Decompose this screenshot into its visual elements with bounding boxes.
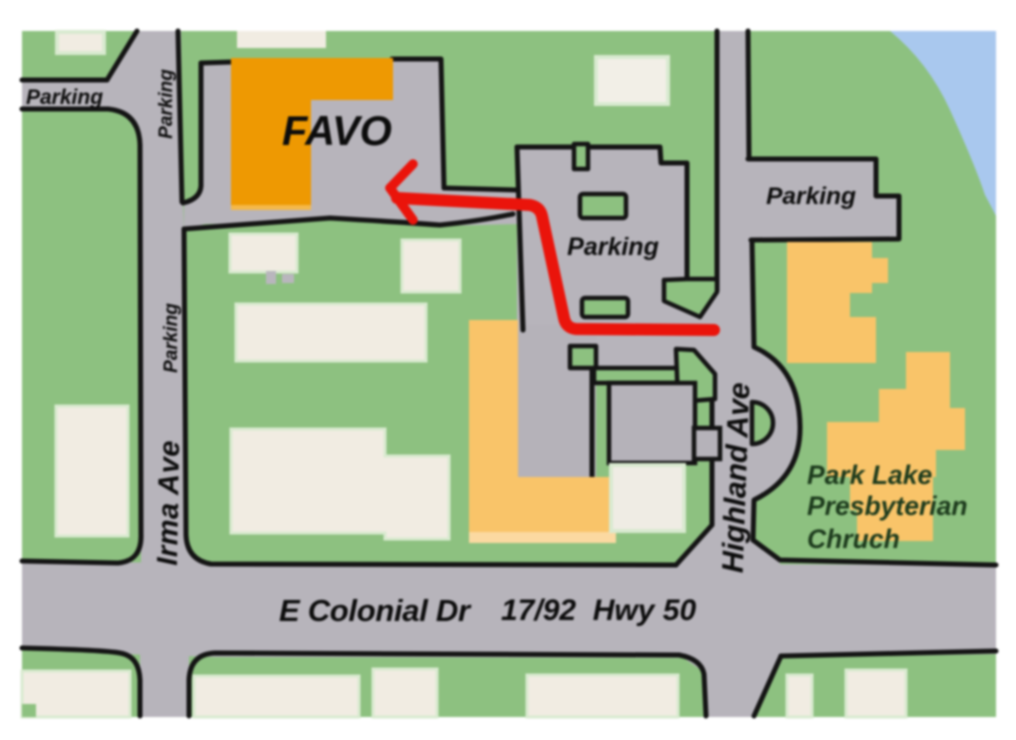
svg-text:Parking: Parking xyxy=(766,183,856,210)
svg-text:Presbyterian: Presbyterian xyxy=(807,491,968,521)
svg-text:FAVO: FAVO xyxy=(282,107,392,154)
svg-text:Irma Ave: Irma Ave xyxy=(152,440,186,566)
svg-text:Parking: Parking xyxy=(161,303,182,373)
svg-text:E Colonial Dr: E Colonial Dr xyxy=(279,593,472,628)
svg-text:Parking: Parking xyxy=(26,86,103,109)
svg-text:17/92 Hwy 50: 17/92 Hwy 50 xyxy=(501,594,696,627)
svg-text:Chruch: Chruch xyxy=(807,524,900,554)
svg-text:Parking: Parking xyxy=(567,233,659,261)
svg-text:Park Lake: Park Lake xyxy=(807,460,932,490)
svg-text:Highland Ave: Highland Ave xyxy=(717,382,757,574)
svg-text:Parking: Parking xyxy=(156,69,177,139)
